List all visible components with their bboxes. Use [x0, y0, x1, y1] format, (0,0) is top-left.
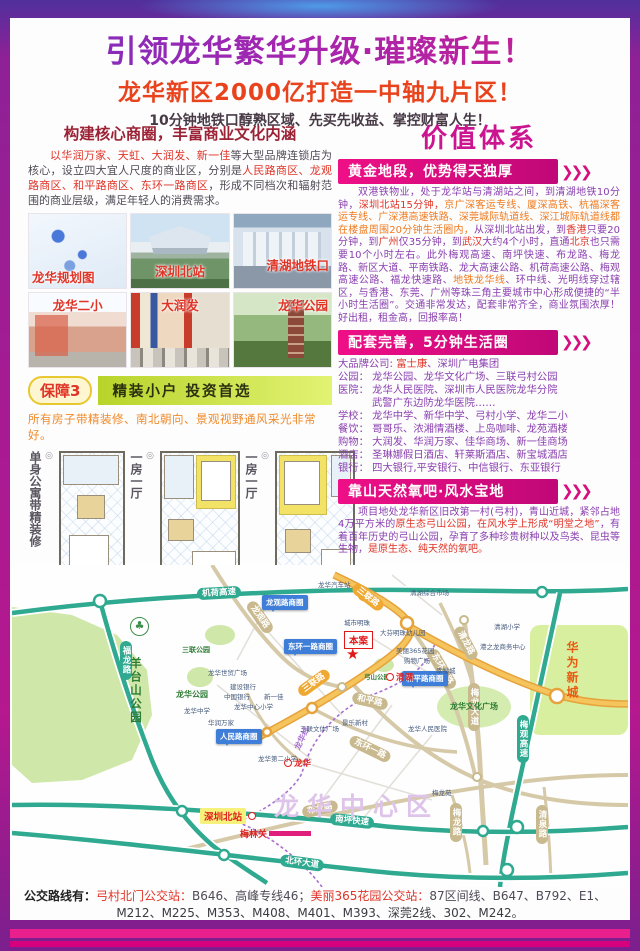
poi-ccb-bank: 建设银行 — [230, 681, 256, 691]
poi-qinghu-market: 清湖综合市场 — [410, 587, 449, 597]
guarantee-note: 所有房子带精装修、南北朝向、景观视野通风采光非常好。 — [28, 411, 332, 443]
callout-renmin-circle: 人民路商圈 — [216, 729, 262, 744]
checkpoint-bar — [269, 831, 311, 836]
chevrons-icon: ❯❯❯ — [561, 482, 590, 500]
callout-donghuan-circle: 东环一路商圈 — [284, 639, 337, 654]
photo-rt-mart: 大润发 — [130, 292, 229, 368]
left-column: 构建核心商圈，丰富商业文化内涵 以华润万家、天虹、大润发、新一佳等大型品牌连锁店… — [28, 122, 332, 589]
area-label-huawei: 华为新城 — [564, 641, 581, 701]
poi-hospital: 龙华人民医院 — [408, 723, 447, 733]
station-label: 清湖 — [396, 671, 413, 683]
photo-caption: 龙华公园 — [278, 295, 328, 314]
station-shenzhen-north: 深圳北站 — [200, 808, 256, 824]
road-label-jihe: 机荷高速 — [197, 586, 242, 600]
poi-longhua-middle-school: 龙华中学 — [184, 705, 210, 715]
commerce-intro-text: 以华润万家、天虹、大润发、新一佳等大型品牌连锁店为核心，设立四大宜人尺度的商业区… — [28, 148, 332, 208]
bus-routes: 公交路线有：弓村北门公交站：B646、高峰专线46；美丽365花园公交站：87区… — [24, 888, 616, 922]
poi-meili365: 美丽365花园 — [396, 645, 434, 655]
photo-planning-map: 龙华规划图 — [28, 213, 127, 289]
poi-chengshi-mingzhu: 城市明珠 — [344, 617, 370, 627]
road-label-qingquan: 清泉路 — [536, 805, 548, 844]
metro-icon — [248, 812, 256, 820]
road-label-meiguan: 梅观高速 — [517, 715, 529, 763]
poi-qinghu-school: 清湖小学 — [494, 621, 520, 631]
poi-second-school: 龙华第二小学 — [258, 753, 297, 763]
sub-title: 龙华新区2000亿打造一中轴九片区！ — [10, 73, 630, 107]
photo-shenzhen-north-station: 深圳北站 — [130, 213, 229, 289]
poi-xinyijia: 新一佳 — [264, 691, 284, 701]
photo-caption: 龙华规划图 — [32, 267, 95, 286]
amenity-line: 医院： 龙华人民医院、深圳市人民医院龙华分院 — [338, 384, 620, 397]
bus-routes-line2: M212、M225、M353、M408、M401、M393、深莞2线、302、M… — [24, 905, 616, 922]
photo-caption: 龙华二小 — [53, 295, 103, 314]
right-column: 价值体系 黄金地段，优势得天独厚 ❯❯❯ 双港铁物业，处于龙华站与清湖站之间，到… — [338, 118, 620, 557]
header: 引领龙华繁华升级·璀璨新生！ 龙华新区2000亿打造一中轴九片区！ 10分钟地铁… — [10, 18, 630, 130]
bottom-stripe-1 — [10, 929, 630, 938]
guarantee-row: 保障3 精装小户 投资首选 — [28, 376, 332, 405]
callout-longguan-circle: 龙观路商圈 — [262, 595, 308, 610]
photo-caption: 大润发 — [161, 295, 199, 314]
photo-caption: 深圳北站 — [155, 261, 205, 280]
banner-label: 黄金地段，优势得天独厚 — [338, 159, 558, 184]
banner-amenities: 配套完善，5分钟生活圈 ❯❯❯ — [338, 330, 620, 355]
area-label-culture-square: 龙华文化广场 — [450, 701, 498, 712]
poi-bus-station: 龙华汽车站 — [318, 579, 351, 589]
poi-shopping-plaza: 购物广场 — [404, 655, 430, 665]
location-map: 机荷高速 南坪快速 北环大道 梅观高速 福龙路 三联路 三联路 龙观路 东环一路… — [12, 565, 628, 887]
amenity-line: 公园： 龙华公园、龙华文化广场、三联弓村公园 — [338, 371, 620, 384]
value-system-title: 价值体系 — [338, 118, 620, 155]
amenities-list: 大品牌公司: 富士康、深圳广电集团 公园： 龙华公园、龙华文化广场、三联弓村公园… — [338, 358, 620, 475]
amenity-line: 大品牌公司: 富士康、深圳广电集团 — [338, 358, 620, 371]
guarantee-badge: 保障3 — [28, 376, 92, 405]
poi-boc-bank: 中国银行 — [224, 691, 250, 701]
bus-routes-line1: 公交路线有：弓村北门公交站：B646、高峰专线46；美丽365花园公交站：87区… — [24, 888, 616, 905]
chevrons-icon: ❯❯❯ — [561, 163, 590, 181]
main-title: 引领龙华繁华升级·璀璨新生！ — [10, 26, 630, 71]
poi-mingzhu-kindergarten: 大芬明珠幼儿园 — [380, 627, 426, 637]
photo-longhua-school: 龙华二小 — [28, 292, 127, 368]
tree-icon: ♣ — [130, 617, 149, 636]
commerce-section-title: 构建核心商圈，丰富商业文化内涵 — [28, 122, 332, 144]
metro-icon — [386, 673, 394, 681]
district-label: 龙华中心区 — [274, 787, 439, 823]
area-label-longhua-park: 龙华公园 — [176, 689, 208, 700]
amenity-line: 武警广东边防龙华医院…… — [338, 397, 620, 410]
poi-jingle-village: 景乐新村 — [342, 717, 368, 727]
guarantee-bar: 精装小户 投资首选 — [98, 376, 332, 405]
flyer-root: { "header": { "title": "引领龙华繁华升级·璀璨新生！",… — [0, 0, 640, 951]
bottom-stripe-2 — [10, 941, 630, 947]
nature-paragraph: 项目地处龙华新区旧改第一村(弓村)，青山近城，紧邻占地4万平方米的原生态弓山公园… — [338, 507, 620, 557]
site-star-icon: ★ — [346, 647, 359, 662]
poi-gangzhilong: 港之龙商务中心 — [480, 641, 526, 651]
amenity-line: 学校： 龙华中学、新华中学、弓村小学、龙华二小 — [338, 410, 620, 423]
amenity-line: 酒店： 圣琳娜假日酒店、轩莱斯酒店、新宝城酒店 — [338, 449, 620, 462]
road-label-meilong-road: 梅龙路 — [450, 803, 462, 842]
chevrons-icon: ❯❯❯ — [561, 333, 590, 351]
photo-grid: 龙华规划图 深圳北站 清湖地铁口 龙华二小 大润发 龙华公园 — [28, 213, 332, 368]
poi-shimao-plaza: 龙华世贸广场 — [208, 667, 247, 677]
amenity-line: 银行： 四大银行,平安银行、中信银行、东亚银行 — [338, 462, 620, 475]
banner-label: 配套完善，5分钟生活圈 — [338, 330, 558, 355]
poi-meilongyuan: 梅龙苑 — [432, 787, 452, 797]
poi-vanguard: 华润万家 — [208, 717, 234, 727]
banner-nature: 靠山天然氧吧·风水宝地 ❯❯❯ — [338, 479, 620, 504]
station-label: 深圳北站 — [200, 808, 246, 824]
station-qinghu: 清湖 — [386, 671, 413, 683]
poi-center-school: 龙华中心小学 — [234, 701, 273, 711]
sanlian-park-area — [205, 625, 235, 645]
photo-qinghu-metro-exit: 清湖地铁口 — [233, 213, 332, 289]
area-label-sanlian-park: 三联公园 — [182, 645, 210, 655]
poi-xingfucheng: 幸福城 — [436, 665, 456, 675]
photo-longhua-park: 龙华公园 — [233, 292, 332, 368]
photo-caption: 清湖地铁口 — [266, 255, 329, 274]
poi-wenti-square: 三联文体广场 — [300, 723, 339, 733]
banner-location: 黄金地段，优势得天独厚 ❯❯❯ — [338, 159, 620, 184]
flyer-page: 引领龙华繁华升级·璀璨新生！ 龙华新区2000亿打造一中轴九片区！ 10分钟地铁… — [10, 18, 630, 920]
banner-label: 靠山天然氧吧·风水宝地 — [338, 479, 558, 504]
area-label-yangtaishan: 羊台山公园 — [128, 657, 144, 725]
checkpoint-meilin: 梅林关 — [240, 827, 311, 840]
amenity-line: 餐饮： 哥哥乐、浓湘情酒楼、上岛咖啡、龙苑酒楼 — [338, 423, 620, 436]
checkpoint-label: 梅林关 — [240, 827, 267, 840]
location-paragraph: 双港铁物业，处于龙华站与清湖站之间，到清湖地铁10分钟，深圳北站15分钟，京广深… — [338, 187, 620, 326]
amenity-line: 购物： 大润发、华润万家、佳华商场、新一佳商场 — [338, 436, 620, 449]
